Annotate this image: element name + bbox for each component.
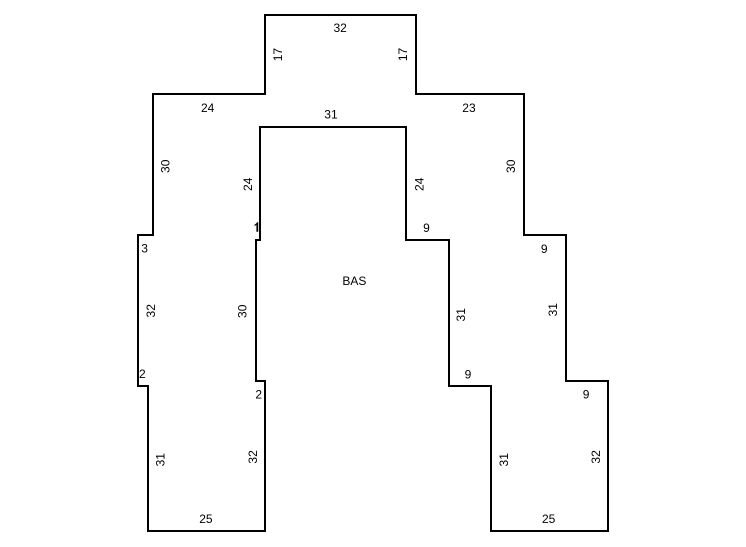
svg-text:32: 32	[334, 21, 348, 35]
svg-text:9: 9	[423, 221, 430, 235]
svg-text:BAS: BAS	[342, 274, 366, 288]
svg-text:32: 32	[246, 450, 260, 464]
svg-text:31: 31	[324, 108, 338, 122]
svg-text:2: 2	[255, 387, 262, 401]
svg-text:30: 30	[236, 304, 250, 318]
svg-text:17: 17	[396, 48, 410, 62]
svg-text:9: 9	[541, 242, 548, 256]
svg-text:24: 24	[201, 101, 215, 115]
svg-text:30: 30	[504, 159, 518, 173]
svg-text:9: 9	[465, 367, 472, 381]
svg-text:2: 2	[139, 367, 146, 381]
svg-text:31: 31	[546, 303, 560, 317]
svg-text:9: 9	[583, 387, 590, 401]
svg-text:17: 17	[271, 48, 285, 62]
svg-text:31: 31	[497, 453, 511, 467]
svg-text:25: 25	[542, 512, 556, 526]
svg-text:32: 32	[144, 304, 158, 318]
svg-text:31: 31	[454, 308, 468, 322]
svg-text:30: 30	[158, 159, 172, 173]
svg-text:25: 25	[199, 512, 213, 526]
svg-text:23: 23	[462, 101, 476, 115]
svg-text:3: 3	[141, 242, 148, 256]
svg-text:24: 24	[241, 177, 255, 191]
svg-text:24: 24	[412, 177, 426, 191]
svg-text:32: 32	[589, 450, 603, 464]
svg-text:31: 31	[153, 453, 167, 467]
